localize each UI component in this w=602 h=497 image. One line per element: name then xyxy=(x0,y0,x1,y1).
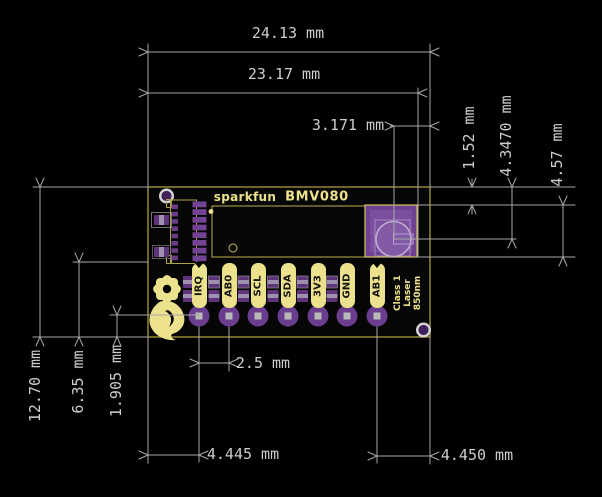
laser-class-line1: Class 1 xyxy=(393,275,403,311)
laser-class-line3: 850nm xyxy=(413,275,423,311)
pin-label-ab0-text: AB0 xyxy=(224,274,235,296)
pin-label-notch xyxy=(194,262,204,268)
pin-label-irq-text: IRQ xyxy=(194,276,205,296)
pin-label-gnd-text: GND xyxy=(342,273,353,298)
pin-label-ab1-text: AB1 xyxy=(372,274,383,296)
silkscreen-brand: sparkfun xyxy=(214,190,276,204)
pin-label-ab1: AB1 xyxy=(370,263,385,308)
pin-label-sda-text: SDA xyxy=(283,274,294,297)
laser-class-line2: Laser xyxy=(403,275,413,311)
dim-board-width-inner: 23.17 mm xyxy=(248,65,320,83)
dim-pin-pitch: 2.5 mm xyxy=(236,354,290,372)
dim-sensor-height: 4.57 mm xyxy=(548,123,566,186)
dim-board-height: 12.70 mm xyxy=(26,350,44,422)
sensor-window xyxy=(365,205,417,257)
dim-board-width-outer: 24.13 mm xyxy=(252,24,324,42)
silkscreen-model: BMV080 xyxy=(285,190,349,205)
dim-sensor-top-inset: 1.52 mm xyxy=(460,106,478,169)
pin-label-scl: SCL xyxy=(251,263,266,308)
dim-pin-left-inset: 4.445 mm xyxy=(207,445,279,463)
fiducial-circle xyxy=(229,244,237,252)
dim-pin-right-inset: 4.450 mm xyxy=(441,446,513,464)
pin-label-gnd: GND xyxy=(340,263,355,308)
pin-label-notch xyxy=(372,262,382,268)
dim-sensor-center-y: 4.3470 mm xyxy=(497,95,515,176)
pin1-marker-dot xyxy=(209,209,214,214)
mounting-hole-bottom-right xyxy=(417,324,430,337)
pin-label-scl-text: SCL xyxy=(253,275,264,296)
pin-label-sda: SDA xyxy=(281,263,296,308)
dim-pin-row-inset: 1.905 mm xyxy=(107,345,125,417)
pin-label-3v3-text: 3V3 xyxy=(313,275,324,297)
dim-board-mid-height: 6.35 mm xyxy=(69,350,87,413)
laser-class-label: Class 1 Laser 850nm xyxy=(393,275,423,311)
dimension-drawing: 24.13 mm 23.17 mm 3.171 mm 1.52 mm 4.347… xyxy=(0,0,602,497)
pin-label-3v3: 3V3 xyxy=(311,263,326,308)
dim-sensor-center-x: 3.171 mm xyxy=(312,116,384,134)
pin-label-ab0: AB0 xyxy=(222,263,237,308)
pin-label-irq: IRQ xyxy=(192,263,207,308)
